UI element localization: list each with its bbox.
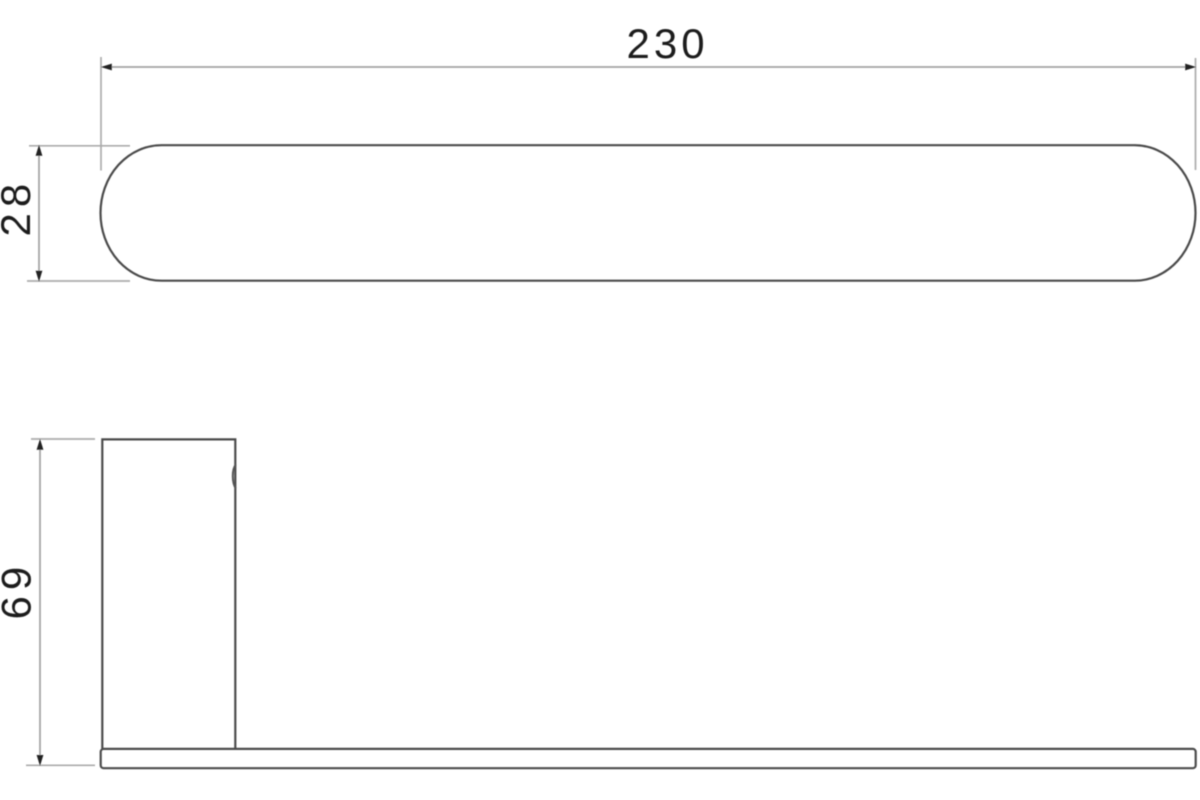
svg-text:28: 28 [0, 178, 39, 237]
svg-text:230: 230 [627, 20, 709, 67]
svg-text:69: 69 [0, 561, 40, 620]
